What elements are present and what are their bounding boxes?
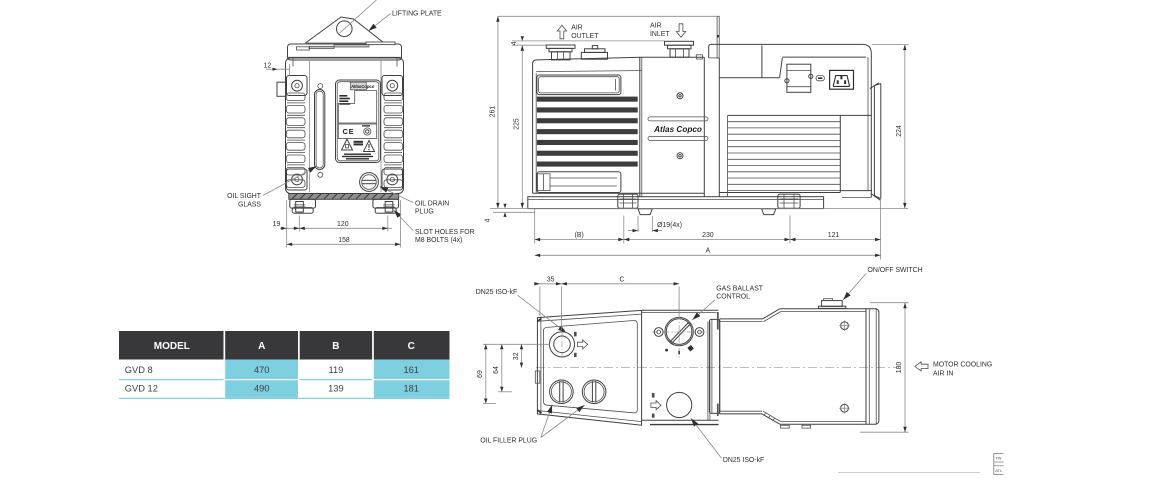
svg-text:Ø19(4x): Ø19(4x)	[657, 222, 682, 229]
svg-text:ON/OFF SWITCH: ON/OFF SWITCH	[868, 267, 923, 274]
svg-text:INLET: INLET	[650, 31, 670, 38]
svg-text:AIR: AIR	[650, 23, 662, 30]
svg-text:120: 120	[337, 221, 349, 228]
svg-text:C: C	[408, 341, 415, 352]
svg-text:GVD 12: GVD 12	[125, 384, 158, 394]
svg-text:35: 35	[547, 277, 555, 284]
svg-text:158: 158	[338, 237, 350, 244]
svg-text:DN25 ISO-kF: DN25 ISO-kF	[476, 289, 517, 296]
svg-text:Atlas Copco: Atlas Copco	[653, 125, 702, 134]
svg-text:19: 19	[273, 221, 281, 228]
svg-text:OIL DRAIN: OIL DRAIN	[415, 200, 449, 207]
svg-text:121: 121	[828, 232, 840, 239]
svg-text:M8 BOLTS (4x): M8 BOLTS (4x)	[415, 237, 462, 244]
svg-text:ATL: ATL	[995, 468, 1003, 473]
svg-text:64: 64	[493, 366, 500, 374]
svg-text:161: 161	[403, 365, 419, 375]
svg-text:(B): (B)	[575, 232, 584, 239]
svg-text:261: 261	[490, 106, 497, 118]
svg-text:PLUG: PLUG	[415, 209, 434, 216]
svg-text:A: A	[706, 248, 711, 255]
svg-text:MODEL: MODEL	[154, 341, 190, 352]
svg-text:B: B	[332, 341, 339, 352]
svg-text:SLOT HOLES FOR: SLOT HOLES FOR	[415, 229, 475, 236]
svg-text:AIR: AIR	[571, 25, 583, 32]
svg-text:OUTLET: OUTLET	[571, 33, 599, 40]
svg-text:GVD 8: GVD 8	[125, 365, 153, 375]
svg-text:32: 32	[513, 352, 520, 360]
svg-text:470: 470	[254, 365, 270, 375]
svg-text:490: 490	[254, 384, 270, 394]
svg-text:119: 119	[328, 365, 343, 375]
svg-text:4: 4	[511, 41, 518, 45]
svg-text:225: 225	[514, 118, 521, 130]
svg-text:230: 230	[702, 232, 714, 239]
svg-text:C: C	[620, 277, 625, 284]
svg-text:MOTOR COOLING: MOTOR COOLING	[933, 362, 992, 369]
svg-text:180: 180	[896, 362, 903, 374]
svg-text:181: 181	[403, 384, 419, 394]
svg-text:AtlasCopco: AtlasCopco	[350, 84, 375, 89]
svg-text:69: 69	[477, 370, 484, 378]
svg-text:OIL FILLER PLUG: OIL FILLER PLUG	[480, 438, 537, 445]
svg-text:LIFTING PLATE: LIFTING PLATE	[392, 11, 442, 18]
svg-text:TiN: TiN	[995, 456, 1001, 461]
svg-text:CONTROL: CONTROL	[716, 294, 750, 301]
svg-text:A: A	[258, 341, 265, 352]
svg-text:OIL SIGHT: OIL SIGHT	[227, 193, 262, 200]
svg-text:DN25 ISO-kF: DN25 ISO-kF	[723, 457, 764, 464]
svg-text:4: 4	[485, 218, 492, 222]
svg-text:CE: CE	[343, 127, 355, 136]
svg-text:AIR IN: AIR IN	[933, 370, 953, 377]
svg-text:GLASS: GLASS	[238, 201, 261, 208]
svg-text:139: 139	[328, 384, 344, 394]
svg-text:GAS BALLAST: GAS BALLAST	[716, 285, 764, 292]
svg-text:224: 224	[896, 125, 903, 137]
svg-text:12: 12	[264, 63, 272, 70]
